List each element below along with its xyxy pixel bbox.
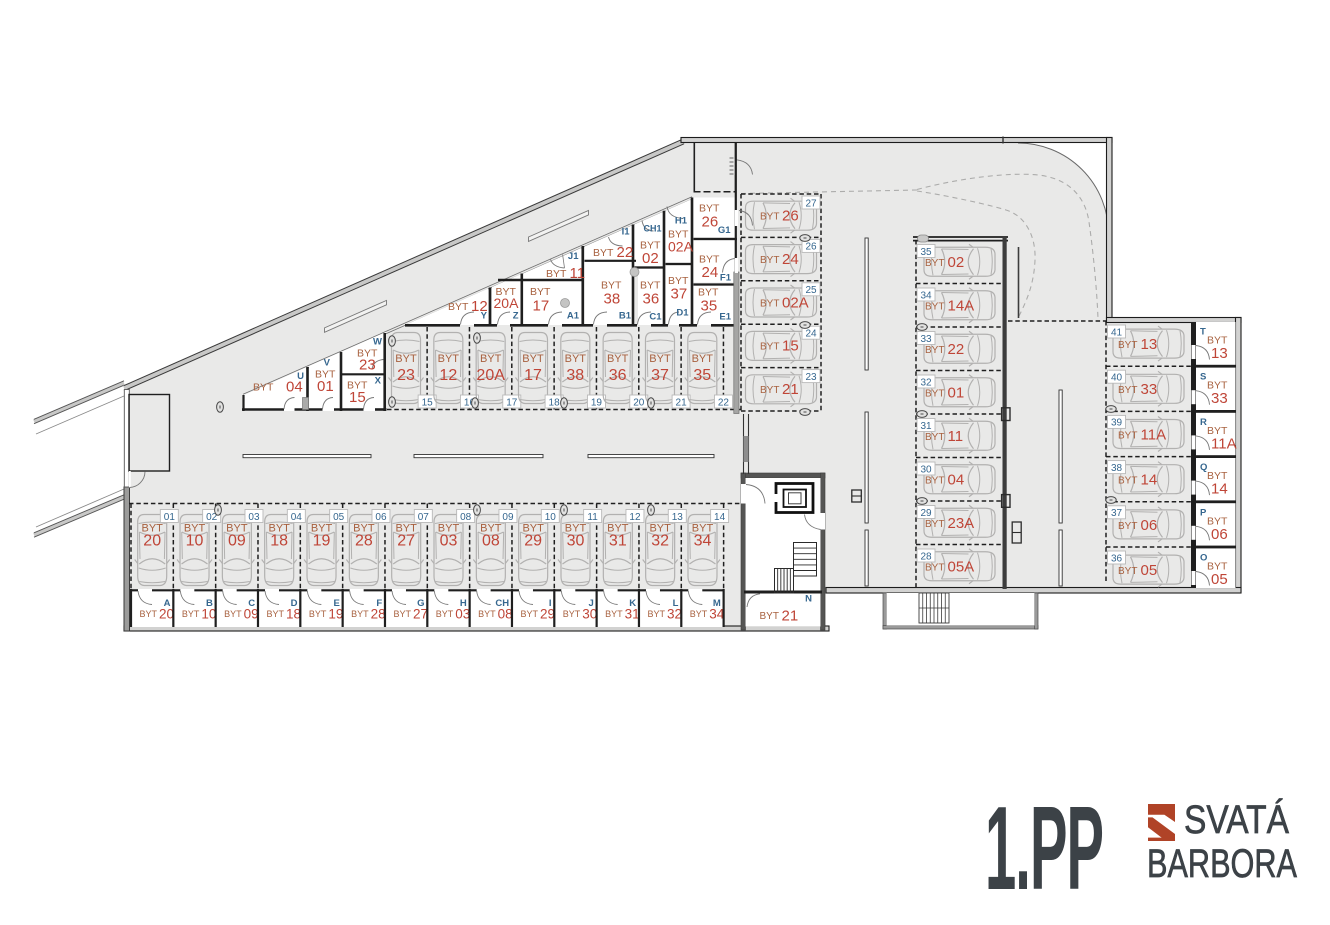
svg-text:20: 20 <box>159 607 174 622</box>
svg-text:20: 20 <box>633 397 645 408</box>
svg-text:35: 35 <box>693 367 711 384</box>
svg-text:19: 19 <box>313 533 331 550</box>
svg-text:BYT: BYT <box>1118 476 1137 487</box>
svg-text:G1: G1 <box>718 225 731 236</box>
svg-text:W: W <box>373 337 382 348</box>
svg-text:12: 12 <box>629 512 641 523</box>
svg-text:BYT: BYT <box>925 519 944 530</box>
svg-text:15: 15 <box>422 397 434 408</box>
svg-text:BYT: BYT <box>478 609 496 619</box>
svg-text:33: 33 <box>920 334 932 345</box>
svg-text:A1: A1 <box>567 311 580 322</box>
svg-text:29: 29 <box>540 607 555 622</box>
svg-text:02A: 02A <box>668 239 694 255</box>
svg-text:X: X <box>375 376 382 387</box>
svg-text:09: 09 <box>244 607 259 622</box>
svg-text:26: 26 <box>805 242 817 253</box>
svg-text:BYT: BYT <box>546 268 567 280</box>
svg-text:30: 30 <box>920 464 932 475</box>
svg-text:18: 18 <box>286 607 301 622</box>
svg-text:02: 02 <box>948 254 965 271</box>
svg-text:34: 34 <box>694 533 712 550</box>
svg-text:BYT: BYT <box>925 432 944 443</box>
svg-text:BYT: BYT <box>692 353 714 365</box>
svg-text:09: 09 <box>228 533 246 550</box>
svg-text:08: 08 <box>482 533 500 550</box>
svg-text:14: 14 <box>1211 481 1228 498</box>
svg-text:36: 36 <box>643 291 660 308</box>
svg-text:BARBORA: BARBORA <box>1147 842 1297 886</box>
svg-text:27: 27 <box>413 607 428 622</box>
svg-text:20A: 20A <box>494 295 520 311</box>
svg-text:31: 31 <box>609 533 627 550</box>
svg-text:24: 24 <box>702 264 719 281</box>
svg-text:BYT: BYT <box>760 385 779 396</box>
svg-text:02: 02 <box>642 250 659 267</box>
svg-text:BYT: BYT <box>925 302 944 313</box>
svg-text:BYT: BYT <box>760 212 779 223</box>
svg-text:U: U <box>297 371 304 382</box>
svg-text:BYT: BYT <box>530 286 551 298</box>
svg-text:17: 17 <box>506 397 518 408</box>
svg-text:E1: E1 <box>719 312 731 323</box>
svg-text:28: 28 <box>355 533 373 550</box>
svg-text:BYT: BYT <box>1118 385 1137 396</box>
svg-text:B1: B1 <box>619 311 632 322</box>
svg-text:S: S <box>1200 372 1206 383</box>
svg-text:17: 17 <box>524 367 542 384</box>
svg-text:23A: 23A <box>948 515 975 532</box>
svg-text:T: T <box>1200 327 1206 338</box>
svg-text:25: 25 <box>805 285 817 296</box>
svg-text:20: 20 <box>143 533 161 550</box>
svg-text:27: 27 <box>805 198 817 209</box>
svg-text:BYT: BYT <box>436 609 454 619</box>
svg-text:05: 05 <box>333 512 345 523</box>
svg-text:BYT: BYT <box>563 609 581 619</box>
svg-text:06: 06 <box>1141 517 1158 534</box>
svg-text:30: 30 <box>567 533 585 550</box>
svg-text:32: 32 <box>651 533 669 550</box>
svg-text:09: 09 <box>502 512 514 523</box>
svg-text:10: 10 <box>545 512 557 523</box>
svg-text:14: 14 <box>714 512 726 523</box>
svg-text:BYT: BYT <box>351 609 369 619</box>
svg-text:36: 36 <box>609 367 627 384</box>
svg-text:03: 03 <box>440 533 458 550</box>
svg-text:BYT: BYT <box>1118 430 1137 441</box>
svg-text:36: 36 <box>1111 553 1123 564</box>
svg-text:21: 21 <box>782 381 799 398</box>
svg-text:23: 23 <box>805 372 817 383</box>
svg-text:CH1: CH1 <box>643 224 661 234</box>
svg-text:34: 34 <box>920 290 932 301</box>
svg-text:V: V <box>324 358 331 369</box>
svg-text:F1: F1 <box>720 273 732 284</box>
svg-text:23: 23 <box>397 367 415 384</box>
svg-text:15: 15 <box>349 389 366 406</box>
svg-text:11A: 11A <box>1141 426 1167 443</box>
svg-text:01: 01 <box>164 512 176 523</box>
svg-text:26: 26 <box>702 214 719 231</box>
svg-text:24: 24 <box>805 329 817 340</box>
svg-text:04: 04 <box>948 472 965 489</box>
svg-text:SVATÁ: SVATÁ <box>1184 797 1289 842</box>
svg-text:BYT: BYT <box>760 342 779 353</box>
svg-text:BYT: BYT <box>224 609 242 619</box>
svg-text:40: 40 <box>1111 373 1123 384</box>
svg-text:11: 11 <box>570 265 586 282</box>
svg-text:06: 06 <box>375 512 387 523</box>
svg-text:11A: 11A <box>1211 435 1237 452</box>
svg-text:BYT: BYT <box>565 353 587 365</box>
svg-text:BYT: BYT <box>925 389 944 400</box>
svg-text:22: 22 <box>948 341 965 358</box>
svg-text:31: 31 <box>920 421 932 432</box>
svg-text:P: P <box>1200 507 1207 518</box>
svg-text:17: 17 <box>533 298 550 315</box>
svg-text:38: 38 <box>1111 463 1123 474</box>
svg-text:18: 18 <box>549 397 561 408</box>
svg-text:38: 38 <box>566 367 584 384</box>
svg-text:BYT: BYT <box>438 353 460 365</box>
svg-text:Z: Z <box>513 311 519 322</box>
svg-text:27: 27 <box>397 533 415 550</box>
svg-text:05: 05 <box>1141 562 1158 579</box>
svg-text:13: 13 <box>672 512 684 523</box>
svg-text:32: 32 <box>667 607 682 622</box>
svg-text:41: 41 <box>1111 327 1123 338</box>
svg-text:28: 28 <box>371 607 386 622</box>
svg-text:BYT: BYT <box>522 353 544 365</box>
svg-text:22: 22 <box>718 397 730 408</box>
svg-text:BYT: BYT <box>1118 566 1137 577</box>
svg-text:06: 06 <box>1211 526 1228 543</box>
svg-text:03: 03 <box>455 607 470 622</box>
svg-text:BYT: BYT <box>1118 340 1137 351</box>
svg-text:35: 35 <box>920 247 932 258</box>
svg-text:BYT: BYT <box>140 609 158 619</box>
svg-text:23: 23 <box>359 357 376 374</box>
svg-text:14A: 14A <box>948 298 975 315</box>
svg-text:03: 03 <box>248 512 260 523</box>
svg-text:34: 34 <box>709 607 725 622</box>
svg-text:Y: Y <box>481 311 488 322</box>
svg-text:35: 35 <box>701 298 718 315</box>
svg-text:33: 33 <box>1141 381 1158 398</box>
svg-text:07: 07 <box>418 512 430 523</box>
svg-text:BYT: BYT <box>760 298 779 309</box>
svg-text:19: 19 <box>328 607 343 622</box>
svg-text:BYT: BYT <box>925 258 944 269</box>
svg-text:01: 01 <box>948 385 965 402</box>
svg-text:BYT: BYT <box>760 611 779 622</box>
svg-text:BYT: BYT <box>925 345 944 356</box>
svg-text:01: 01 <box>317 378 334 395</box>
svg-text:BYT: BYT <box>925 563 944 574</box>
svg-text:BYT: BYT <box>266 609 284 619</box>
svg-text:24: 24 <box>782 251 799 268</box>
svg-text:08: 08 <box>498 607 513 622</box>
svg-text:N: N <box>805 594 812 605</box>
svg-text:19: 19 <box>591 397 603 408</box>
svg-text:BYT: BYT <box>480 353 502 365</box>
svg-text:1.PP: 1.PP <box>985 782 1103 915</box>
svg-text:29: 29 <box>920 508 932 519</box>
svg-text:20A: 20A <box>476 367 505 384</box>
svg-text:BYT: BYT <box>607 353 629 365</box>
svg-text:BYT: BYT <box>760 255 779 266</box>
svg-text:12: 12 <box>439 367 457 384</box>
svg-text:08: 08 <box>460 512 472 523</box>
svg-text:BYT: BYT <box>690 609 708 619</box>
svg-text:05A: 05A <box>948 559 975 576</box>
svg-text:13: 13 <box>1211 345 1228 362</box>
svg-text:I1: I1 <box>622 227 631 238</box>
svg-text:BYT: BYT <box>253 382 274 394</box>
svg-text:04: 04 <box>291 512 303 523</box>
svg-text:15: 15 <box>782 338 799 355</box>
svg-text:J1: J1 <box>568 251 579 262</box>
svg-text:32: 32 <box>920 377 932 388</box>
svg-text:BYT: BYT <box>395 353 417 365</box>
svg-text:11: 11 <box>587 512 598 523</box>
svg-text:BYT: BYT <box>393 609 411 619</box>
svg-text:BYT: BYT <box>309 609 327 619</box>
svg-text:39: 39 <box>1111 418 1123 429</box>
svg-text:BYT: BYT <box>593 247 614 259</box>
svg-text:H1: H1 <box>675 216 688 227</box>
svg-text:BYT: BYT <box>925 476 944 487</box>
svg-text:29: 29 <box>524 533 542 550</box>
svg-text:11: 11 <box>948 428 964 445</box>
svg-text:BYT: BYT <box>647 609 665 619</box>
svg-text:BYT: BYT <box>1118 521 1137 532</box>
svg-text:BYT: BYT <box>649 353 671 365</box>
svg-text:28: 28 <box>920 551 932 562</box>
svg-text:31: 31 <box>625 607 640 622</box>
svg-text:26: 26 <box>782 208 799 225</box>
svg-text:22: 22 <box>617 244 634 261</box>
svg-text:05: 05 <box>1211 571 1228 588</box>
svg-text:02A: 02A <box>782 294 809 311</box>
svg-text:C1: C1 <box>649 312 662 323</box>
svg-text:BYT: BYT <box>520 609 538 619</box>
svg-text:21: 21 <box>782 608 799 625</box>
svg-text:BYT: BYT <box>448 301 469 313</box>
svg-text:10: 10 <box>186 533 204 550</box>
svg-text:D1: D1 <box>676 308 689 319</box>
svg-text:18: 18 <box>270 533 288 550</box>
svg-text:38: 38 <box>604 291 621 308</box>
svg-text:R: R <box>1200 417 1207 428</box>
svg-text:33: 33 <box>1211 390 1228 407</box>
svg-text:10: 10 <box>201 607 216 622</box>
svg-text:21: 21 <box>676 397 688 408</box>
svg-text:37: 37 <box>651 367 669 384</box>
svg-text:BYT: BYT <box>605 609 623 619</box>
svg-text:14: 14 <box>1141 472 1158 489</box>
svg-text:30: 30 <box>582 607 597 622</box>
svg-text:13: 13 <box>1141 336 1158 353</box>
svg-text:BYT: BYT <box>182 609 200 619</box>
svg-text:37: 37 <box>1111 508 1123 519</box>
svg-text:37: 37 <box>671 286 688 303</box>
